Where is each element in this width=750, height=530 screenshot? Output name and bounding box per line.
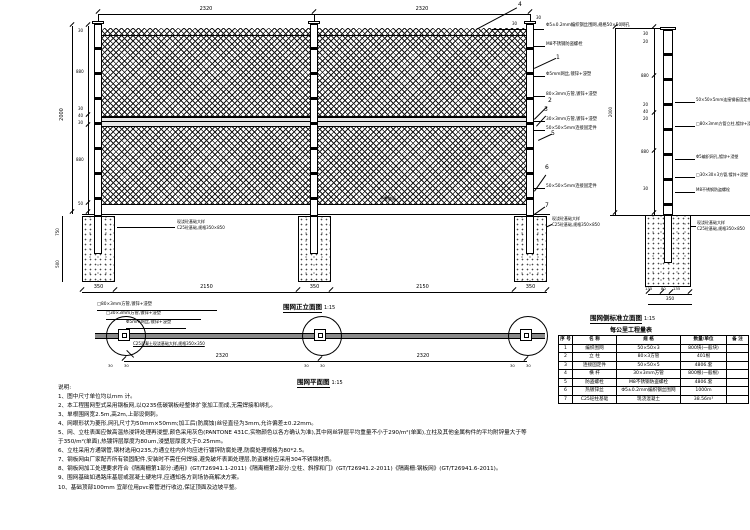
footing-label-line1: 现浇砼基础大样 [552,217,580,221]
callout-mesh-wire: Φ5±0.2mm编织钢丝围网,规格50×50网孔 [546,24,630,29]
table-cell: 50×50×5 [617,361,681,370]
leader-line [492,29,544,30]
embedded-post [94,216,102,254]
dim-chain-line [88,26,89,214]
materials-table: 序 号 名 称 规 格 数量/单位 备 注 1编织围网50×50×3800块(一… [558,335,749,404]
table-cell [727,387,749,396]
ground-label: 平整路面 [380,197,396,201]
dim-label-small: 20 [643,117,648,121]
callout-rail-tube: □30×30×3方管,镀锌+浸塑 [696,173,748,177]
dim-label-small: 30 [510,364,515,368]
plan-post-core [524,333,529,338]
dim-label-small: 880 [641,150,649,154]
balloon-5: 5 [551,131,555,137]
dim-label-bottom: 350 [82,285,115,290]
callout-post-tube: 80×3mm方管,镀锌+浸塑 [546,93,597,98]
table-cell: 4 [559,370,573,379]
dim-label-overall-height: 2000 [60,108,65,121]
dim-label-small: 20 [643,103,648,107]
leader-line [476,7,517,29]
dim-label-span: 2320 [124,354,320,359]
dim-label-small: 880 [76,70,84,74]
table-cell: 30×3mm方管 [617,370,681,379]
table-row: 1编织围网50×50×3800块(一般块) [559,344,749,353]
plan-callout-post: □80×3mm方管,镀锌+浸塑 [97,303,152,308]
plan-post-core [122,333,127,338]
table-cell: 1000m [681,387,727,396]
elevation-scale: 1:15 [324,305,335,311]
table-cell: 5 [559,378,573,387]
callout-connector-plate: 50×50×5mm连接钢板固定件,镀锌+浸塑 [696,98,750,102]
table-title: 每公里工程量表 [610,325,652,334]
table-cell: 4806.套 [681,378,727,387]
dim-label-small: 30 [304,364,309,368]
table-cell [727,395,749,404]
balloon-7: 7 [545,203,549,209]
callout-connector: 50×50×5mm连接固定件 [546,185,597,190]
table-cell: 80×3方管 [617,353,681,362]
table-cell: 50×50×3 [617,344,681,353]
note-item: 9、围网基础如遇路床基层或混凝土硬地坪,应通知各方到场协商解决方案。 [58,474,528,483]
dim-label-small: 30 [536,16,541,20]
table-cell: 800根(一般根) [681,370,727,379]
dim-label-small: 30 [526,364,531,368]
leader-line [534,175,546,192]
callout-wire: Φ5mm网丝,镀锌+浸塑 [546,73,591,78]
leader-line [534,130,545,131]
dim-label-small: 40 [78,114,83,118]
footing-label-line2: C25砼基础,规格350×850 [177,226,225,230]
table-cell: 800块(一般块) [681,344,727,353]
dim-label-small: 40 [643,110,648,114]
table-cell: 热镀锌丝 [573,387,617,396]
note-item: 8、钢板网加工处理要求符合《隔离栅第1部分:通用》(GT/T26941.1-20… [58,465,528,474]
dim-label-footing-depth: 750 [56,228,60,236]
leader-line [675,102,695,103]
dim-label-small: 30 [512,22,517,26]
embedded-post-side [664,215,672,263]
dim-label-bottom: 350 [298,285,331,290]
dim-line-height [72,26,73,214]
note-item: 1、图中尺寸单位均以mm 计。 [58,393,528,402]
leader-line [675,177,695,178]
table-cell [727,353,749,362]
fence-post [310,24,318,216]
embedded-post [310,216,318,254]
leader-line [534,46,545,47]
table-cell: C25砼柱基础 [573,395,617,404]
dim-label-small: 30 [78,121,83,125]
note-item: 6、立柱采用方通钢管,钢材选用Q235,方通立柱内外均应进行镀锌防腐处理,防腐处… [58,447,528,456]
balloon-3: 3 [544,107,548,113]
balloon-1: 1 [556,55,560,61]
dim-label-small: 135 [645,287,652,291]
table-cell: 4806.套 [681,361,727,370]
leader-line [675,192,695,193]
table-cell: 防盗螺栓 [573,378,617,387]
table-cell: 3 [559,361,573,370]
callout-post-tube: □80×3mm方管立柱,镀锌+浸塑 [696,122,750,126]
dim-label-bottom: 2150 [115,285,298,290]
dim-label-small: 30 [643,187,648,191]
balloon-2: 2 [548,98,552,104]
table-cell: M8不锈钢防盗螺栓 [617,378,681,387]
table-cell: 2 [559,353,573,362]
fence-post [94,24,102,216]
footing-label-line2: C25砼基础,规格350×850 [697,227,745,231]
table-cell: 连接固定件 [573,361,617,370]
footing-label-line1: 现浇砼基础大样 [177,220,205,224]
plan-callout-rail: □30×3mm方管,镀锌+浸塑 [106,312,161,317]
notes-block: 说明: 1、图中尺寸单位均以mm 计。 2、本工程围网型式采用钢板网,以Q235… [58,384,528,493]
dim-label-bottom: 2150 [331,285,514,290]
balloon-4: 4 [518,2,522,8]
dim-label-bottom: 350 [514,285,547,290]
elevation-caption: 围网正立面图1:15 [283,301,335,311]
leader-line [534,58,556,69]
callout-bolt: M8不锈钢防盗螺栓 [696,188,730,192]
table-cell: 立 柱 [573,353,617,362]
dim-line-side-bottom [648,294,692,295]
dim-label-small: 135 [673,287,680,291]
dim-label-small: 30 [78,107,83,111]
table-cell: 横 杆 [573,370,617,379]
footing-label-line1: 现浇砼基础大样 [697,221,725,225]
leader-line [691,226,696,227]
dim-label-side-height: 2000 [609,107,613,117]
dim-label-span: 2320 [366,7,478,12]
leader-line [675,159,695,160]
table-row: 2立 柱80×3方管401根 [559,353,749,362]
dim-label-small: 20 [643,40,648,44]
leader-line [675,126,695,127]
dim-label-small: 880 [76,158,84,162]
table-header: 备 注 [727,336,749,345]
table-cell: 401根 [681,353,727,362]
table-row: 3连接固定件50×50×54806.套 [559,361,749,370]
drawing-sheet: 2320 2320 30 30 2000 30 880 30 40 30 880… [0,0,750,530]
note-item: 7、钢板网由厂家配齐所有锁固配件,安装时不需任何焊接,避免破坏表面处理层,防盗螺… [58,456,528,465]
table-cell: Φ5±0.2mm编织钢丝围网 [617,387,681,396]
side-view-caption: 围网侧标准立面图1:15 [590,312,655,322]
table-cell [727,361,749,370]
table-cell: 1 [559,344,573,353]
side-post [663,30,673,215]
table-body: 1编织围网50×50×3800块(一般块)2立 柱80×3方管401根3连接固定… [559,344,749,404]
plan-callout-wire: Φ5mm网丝,镀锌+浸塑 [126,321,171,326]
plan-footing-note: C25混凝土现浇基础大样,规格350×350 [133,342,205,346]
dim-label-small: 50 [78,202,83,206]
table-header: 规 格 [617,336,681,345]
table-cell: 编织围网 [573,344,617,353]
dim-label-small: 880 [641,74,649,78]
table-header: 数量/单位 [681,336,727,345]
note-item: 3、单根围网宽2.5m,高2m,上部设倒刺。 [58,411,528,420]
notes-title: 说明: [58,384,528,393]
note-item: 2、本工程围网型式采用钢板网,以Q235低碳钢板经整体扩张加工而成,无需焊接和绑… [58,402,528,411]
balloon-6: 6 [545,165,549,171]
footing-label-line2: C25砼基础,规格350×850 [552,223,600,227]
table-header: 名 称 [573,336,617,345]
dim-line-side-total [648,304,692,305]
dim-label-total: 350 [648,298,692,303]
elevation-title: 围网正立面图 [283,303,322,313]
leader-line [534,96,545,97]
table-cell: 现浇混凝土 [617,395,681,404]
dim-label-small: 30 [78,29,83,33]
table-cell [727,378,749,387]
dim-label-span: 2320 [150,7,262,12]
callout-mesh: Φ5编织网孔,镀锌+浸塑 [696,155,738,159]
table-row: 4横 杆30×3mm方管800根(一般根) [559,370,749,379]
dim-label-small: 30 [643,32,648,36]
dim-line-footing [62,216,63,282]
dim-label-footing-depth: 500 [56,260,60,268]
dim-line-bottom [82,292,547,293]
table-row: 7C25砼柱基础现浇混凝土38.56m³ [559,395,749,404]
table-cell: 38.56m³ [681,395,727,404]
dim-line-side-height [615,28,616,215]
table-cell: 6 [559,387,573,396]
leader-line [534,76,545,77]
embedded-post [526,216,534,254]
table-header: 序 号 [559,336,573,345]
dim-label-span: 2320 [320,354,526,359]
note-item: 5、网、立柱表面应做高温热浸锌处理再浸塑,颜色采用灰色(PANTONE 431C… [58,429,528,447]
table-row: 5防盗螺栓M8不锈钢防盗螺栓4806.套 [559,378,749,387]
callout-rail-tube: 30×3mm方管,镀锌+浸塑 [546,118,597,123]
ground-label-leader [372,204,418,205]
callout-bolt: M8不锈钢防盗螺栓 [546,43,583,48]
dim-label-small: 30 [124,364,129,368]
note-item: 4、网眼形状为菱形,网孔尺寸为50mm×50mm;加工后(防腐蚀)丝径直径为3m… [58,420,528,429]
table-cell [727,370,749,379]
table-cell [727,344,749,353]
table-row: 6热镀锌丝Φ5±0.2mm编织钢丝围网1000m [559,387,749,396]
dim-chain-line-side [654,28,655,215]
table-cell: 7 [559,395,573,404]
side-view-title: 围网侧标准立面图 [590,314,642,324]
dim-label-small: 30 [320,364,325,368]
plan-post-core [318,333,323,338]
fence-post [526,24,534,216]
note-item: 10、基础顶部100mm 宜部位用pvc套管进行收边,保证顶面及边坡平整。 [58,484,528,493]
dim-line-plan [124,361,527,362]
side-view-scale: 1:15 [644,316,655,322]
leader-line [117,227,175,228]
dim-label-small: 30 [108,364,113,368]
dim-label-small: 80 [661,287,666,291]
leader-line [538,134,552,141]
